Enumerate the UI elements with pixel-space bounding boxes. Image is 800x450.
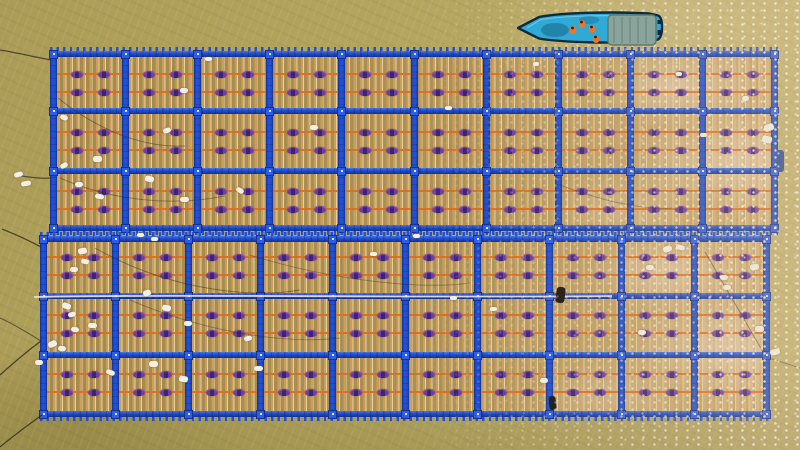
float-bead [278, 312, 290, 319]
float-bead [278, 254, 290, 261]
float-bead [206, 272, 218, 279]
styrofoam-float [70, 267, 78, 272]
frame-connector [337, 167, 346, 176]
float-bead [242, 206, 254, 213]
float-bead [531, 89, 543, 96]
float-bead [242, 89, 254, 96]
raft-top [50, 51, 778, 231]
float-bead [495, 254, 507, 261]
float-bead [287, 188, 299, 195]
frame-vertical-beam [257, 236, 264, 417]
float-bead [215, 147, 227, 154]
styrofoam-float [761, 135, 772, 144]
float-bead [639, 312, 651, 319]
float-bead [143, 129, 155, 136]
float-bead [666, 371, 678, 378]
float-bead [278, 371, 290, 378]
float-bead [377, 389, 389, 396]
styrofoam-float [75, 182, 83, 187]
float-bead [71, 71, 83, 78]
frame-connector [554, 50, 563, 59]
float-bead [720, 206, 732, 213]
float-bead [359, 206, 371, 213]
frame-connector [482, 107, 491, 116]
frame-connector [328, 292, 337, 301]
dark-float [776, 150, 784, 172]
float-bead [450, 330, 462, 337]
frame-connector [184, 235, 193, 244]
float-bead [314, 206, 326, 213]
float-bead [305, 272, 317, 279]
float-bead [305, 312, 317, 319]
float-bead [170, 147, 182, 154]
float-bead [170, 188, 182, 195]
float-bead [88, 272, 100, 279]
float-bead [143, 89, 155, 96]
styrofoam-float [742, 96, 749, 101]
dark-float [548, 396, 556, 411]
styrofoam-float [755, 326, 764, 332]
float-bead [739, 254, 751, 261]
frame-vertical-beam [483, 51, 490, 231]
float-bead [666, 389, 678, 396]
float-bead [423, 254, 435, 261]
float-bead [233, 312, 245, 319]
float-bead [648, 129, 660, 136]
frame-vertical-beam [627, 51, 634, 231]
float-bead [359, 147, 371, 154]
float-bead [531, 206, 543, 213]
frame-connector [698, 167, 707, 176]
frame-connector [39, 410, 48, 419]
float-bead [215, 206, 227, 213]
float-bead [305, 330, 317, 337]
float-bead [495, 330, 507, 337]
float-bead [666, 272, 678, 279]
float-bead [287, 147, 299, 154]
float-bead [359, 89, 371, 96]
float-bead [350, 312, 362, 319]
float-bead [215, 71, 227, 78]
float-bead [88, 371, 100, 378]
float-bead [739, 371, 751, 378]
frame-connector [410, 107, 419, 116]
float-bead [287, 129, 299, 136]
frame-connector [111, 292, 120, 301]
styrofoam-float [205, 57, 212, 61]
frame-vertical-beam [338, 51, 345, 231]
float-bead [459, 147, 471, 154]
float-bead [278, 389, 290, 396]
frame-vertical-beam [402, 236, 409, 417]
styrofoam-float [149, 361, 158, 367]
float-bead [133, 389, 145, 396]
float-bead [576, 89, 588, 96]
float-bead [522, 389, 534, 396]
frame-connector [554, 107, 563, 116]
frame-connector [698, 107, 707, 116]
frame-vertical-beam [555, 51, 562, 231]
frame-connector [473, 235, 482, 244]
float-bead [675, 129, 687, 136]
frame-connector [328, 235, 337, 244]
frame-vertical-beam [50, 51, 57, 231]
float-bead [567, 330, 579, 337]
float-bead [233, 272, 245, 279]
frame-vertical-beam [618, 236, 625, 417]
float-bead [423, 371, 435, 378]
float-bead [747, 89, 759, 96]
workboat [517, 7, 664, 47]
frame-vertical-beam [40, 236, 47, 417]
float-bead [377, 371, 389, 378]
float-bead [603, 206, 615, 213]
frame-connector [256, 235, 265, 244]
float-bead [350, 389, 362, 396]
float-bead [305, 254, 317, 261]
float-bead [720, 188, 732, 195]
float-bead [712, 312, 724, 319]
float-bead [720, 147, 732, 154]
frame-connector [39, 351, 48, 360]
frame-connector [111, 410, 120, 419]
frame-connector [626, 50, 635, 59]
styrofoam-float [93, 156, 102, 162]
float-bead [71, 129, 83, 136]
float-bead [242, 129, 254, 136]
frame-connector [49, 167, 58, 176]
float-bead [133, 330, 145, 337]
float-bead [739, 389, 751, 396]
float-bead [495, 272, 507, 279]
float-bead [639, 254, 651, 261]
frame-connector [690, 410, 699, 419]
float-bead [450, 272, 462, 279]
float-bead [133, 272, 145, 279]
float-bead [233, 389, 245, 396]
frame-connector [184, 410, 193, 419]
float-bead [432, 188, 444, 195]
styrofoam-float [180, 197, 189, 202]
float-bead [495, 312, 507, 319]
frame-connector [410, 50, 419, 59]
float-bead [603, 147, 615, 154]
frame-connector [698, 50, 707, 59]
float-bead [423, 389, 435, 396]
float-bead [648, 89, 660, 96]
float-bead [495, 371, 507, 378]
frame-connector [770, 224, 779, 233]
float-bead [350, 371, 362, 378]
boat-deck-shadow [541, 23, 569, 37]
frame-connector [256, 410, 265, 419]
float-bead [377, 312, 389, 319]
frame-connector [328, 351, 337, 360]
float-bead [305, 371, 317, 378]
float-bead [314, 188, 326, 195]
float-bead [215, 188, 227, 195]
frame-connector [690, 292, 699, 301]
frame-vertical-beam [699, 51, 706, 231]
float-bead [567, 371, 579, 378]
frame-connector [401, 351, 410, 360]
frame-connector [111, 351, 120, 360]
float-bead [522, 272, 534, 279]
float-bead [143, 71, 155, 78]
float-bead [206, 330, 218, 337]
float-bead [567, 254, 579, 261]
float-bead [287, 71, 299, 78]
float-bead [603, 129, 615, 136]
float-bead [423, 312, 435, 319]
float-bead [314, 147, 326, 154]
frame-connector [401, 292, 410, 301]
float-bead [133, 371, 145, 378]
frame-connector [401, 235, 410, 244]
boat-stern-gear [658, 30, 662, 35]
float-bead [675, 188, 687, 195]
float-bead [432, 129, 444, 136]
frame-connector [256, 351, 265, 360]
float-bead [594, 330, 606, 337]
frame-connector [617, 292, 626, 301]
styrofoam-float [254, 366, 263, 371]
float-bead [504, 89, 516, 96]
float-bead [305, 389, 317, 396]
frame-connector [193, 107, 202, 116]
float-bead [576, 206, 588, 213]
float-bead [206, 312, 218, 319]
float-bead [314, 89, 326, 96]
frame-connector [184, 351, 193, 360]
float-bead [747, 188, 759, 195]
frame-connector [337, 50, 346, 59]
float-bead [522, 254, 534, 261]
frame-connector [121, 107, 130, 116]
frame-vertical-beam [691, 236, 698, 417]
float-bead [720, 129, 732, 136]
float-bead [712, 254, 724, 261]
float-bead [377, 330, 389, 337]
float-bead [432, 71, 444, 78]
styrofoam-float [638, 330, 646, 335]
frame-connector [762, 292, 771, 301]
float-bead [450, 254, 462, 261]
frame-connector [473, 292, 482, 301]
styrofoam-float [137, 233, 144, 237]
frame-connector [473, 410, 482, 419]
frame-connector [626, 167, 635, 176]
float-bead [747, 147, 759, 154]
float-bead [739, 330, 751, 337]
styrofoam-float [180, 88, 188, 93]
float-bead [576, 129, 588, 136]
float-bead [594, 389, 606, 396]
crew-member-head [580, 21, 583, 24]
float-bead [206, 371, 218, 378]
float-bead [350, 254, 362, 261]
float-bead [88, 330, 100, 337]
frame-connector [617, 235, 626, 244]
float-bead [712, 330, 724, 337]
frame-connector [184, 292, 193, 301]
float-bead [747, 206, 759, 213]
styrofoam-float [88, 323, 97, 328]
frame-vertical-beam [122, 51, 129, 231]
float-bead [576, 188, 588, 195]
float-bead [386, 71, 398, 78]
styrofoam-float [162, 304, 172, 311]
float-bead [143, 206, 155, 213]
styrofoam-float [310, 125, 318, 130]
frame-connector [617, 410, 626, 419]
float-bead [639, 272, 651, 279]
frame-connector [626, 107, 635, 116]
frame-connector [690, 351, 699, 360]
frame-vertical-beam [266, 51, 273, 231]
frame-connector [193, 167, 202, 176]
float-bead [359, 71, 371, 78]
float-bead [675, 89, 687, 96]
float-bead [576, 71, 588, 78]
float-bead [720, 71, 732, 78]
crew-member-head [571, 27, 574, 30]
float-bead [747, 129, 759, 136]
float-bead [432, 89, 444, 96]
float-bead [386, 89, 398, 96]
float-bead [747, 71, 759, 78]
float-bead [160, 272, 172, 279]
styrofoam-float [700, 133, 707, 137]
float-bead [423, 330, 435, 337]
frame-connector [545, 351, 554, 360]
float-bead [504, 206, 516, 213]
float-bead [576, 147, 588, 154]
float-bead [675, 147, 687, 154]
float-bead [459, 89, 471, 96]
float-bead [603, 71, 615, 78]
float-bead [567, 312, 579, 319]
frame-connector [545, 235, 554, 244]
float-bead [639, 389, 651, 396]
float-bead [522, 330, 534, 337]
float-bead [88, 254, 100, 261]
frame-connector [690, 235, 699, 244]
float-bead [459, 129, 471, 136]
float-bead [71, 147, 83, 154]
float-bead [215, 89, 227, 96]
float-bead [170, 206, 182, 213]
float-bead [242, 147, 254, 154]
float-bead [666, 330, 678, 337]
float-bead [432, 147, 444, 154]
frame-vertical-beam [112, 236, 119, 417]
frame-vertical-beam [474, 236, 481, 417]
frame-connector [337, 107, 346, 116]
float-bead [287, 206, 299, 213]
float-bead [98, 206, 110, 213]
frame-connector [401, 410, 410, 419]
float-bead [242, 71, 254, 78]
frame-vertical-beam [411, 51, 418, 231]
frame-connector [256, 292, 265, 301]
float-bead [603, 188, 615, 195]
float-bead [504, 129, 516, 136]
float-bead [206, 254, 218, 261]
frame-connector [770, 107, 779, 116]
float-bead [170, 71, 182, 78]
styrofoam-float [540, 378, 548, 383]
float-bead [160, 312, 172, 319]
crew-member-head [590, 26, 593, 29]
raft-bottom [40, 236, 770, 417]
float-bead [712, 389, 724, 396]
float-bead [61, 371, 73, 378]
float-bead [359, 188, 371, 195]
float-bead [386, 147, 398, 154]
float-bead [495, 389, 507, 396]
float-bead [522, 371, 534, 378]
float-bead [648, 188, 660, 195]
float-bead [423, 272, 435, 279]
crew-member-head [594, 36, 597, 39]
float-bead [666, 312, 678, 319]
frame-connector [265, 167, 274, 176]
float-bead [739, 272, 751, 279]
float-bead [88, 312, 100, 319]
float-bead [98, 129, 110, 136]
float-bead [450, 312, 462, 319]
float-bead [233, 371, 245, 378]
float-bead [233, 330, 245, 337]
float-bead [522, 312, 534, 319]
styrofoam-float [179, 375, 189, 382]
float-bead [215, 129, 227, 136]
float-bead [350, 330, 362, 337]
styrofoam-float [533, 62, 539, 66]
float-bead [143, 147, 155, 154]
styrofoam-float [151, 237, 158, 241]
float-bead [531, 129, 543, 136]
frame-connector [39, 292, 48, 301]
float-bead [567, 389, 579, 396]
frame-connector [545, 410, 554, 419]
float-bead [359, 129, 371, 136]
float-bead [450, 371, 462, 378]
float-bead [594, 371, 606, 378]
float-bead [386, 188, 398, 195]
float-bead [648, 71, 660, 78]
styrofoam-float [720, 275, 728, 280]
aerial-photo [0, 0, 800, 450]
float-bead [377, 272, 389, 279]
float-bead [314, 71, 326, 78]
float-bead [603, 89, 615, 96]
frame-connector [121, 50, 130, 59]
styrofoam-float [646, 265, 654, 270]
styrofoam-float [723, 285, 731, 290]
frame-connector [617, 351, 626, 360]
boat-canopy [608, 15, 656, 45]
frame-vertical-beam [185, 236, 192, 417]
float-bead [61, 389, 73, 396]
float-bead [160, 389, 172, 396]
float-bead [278, 272, 290, 279]
float-bead [459, 71, 471, 78]
styrofoam-float [450, 296, 457, 300]
float-bead [648, 206, 660, 213]
frame-connector [265, 50, 274, 59]
